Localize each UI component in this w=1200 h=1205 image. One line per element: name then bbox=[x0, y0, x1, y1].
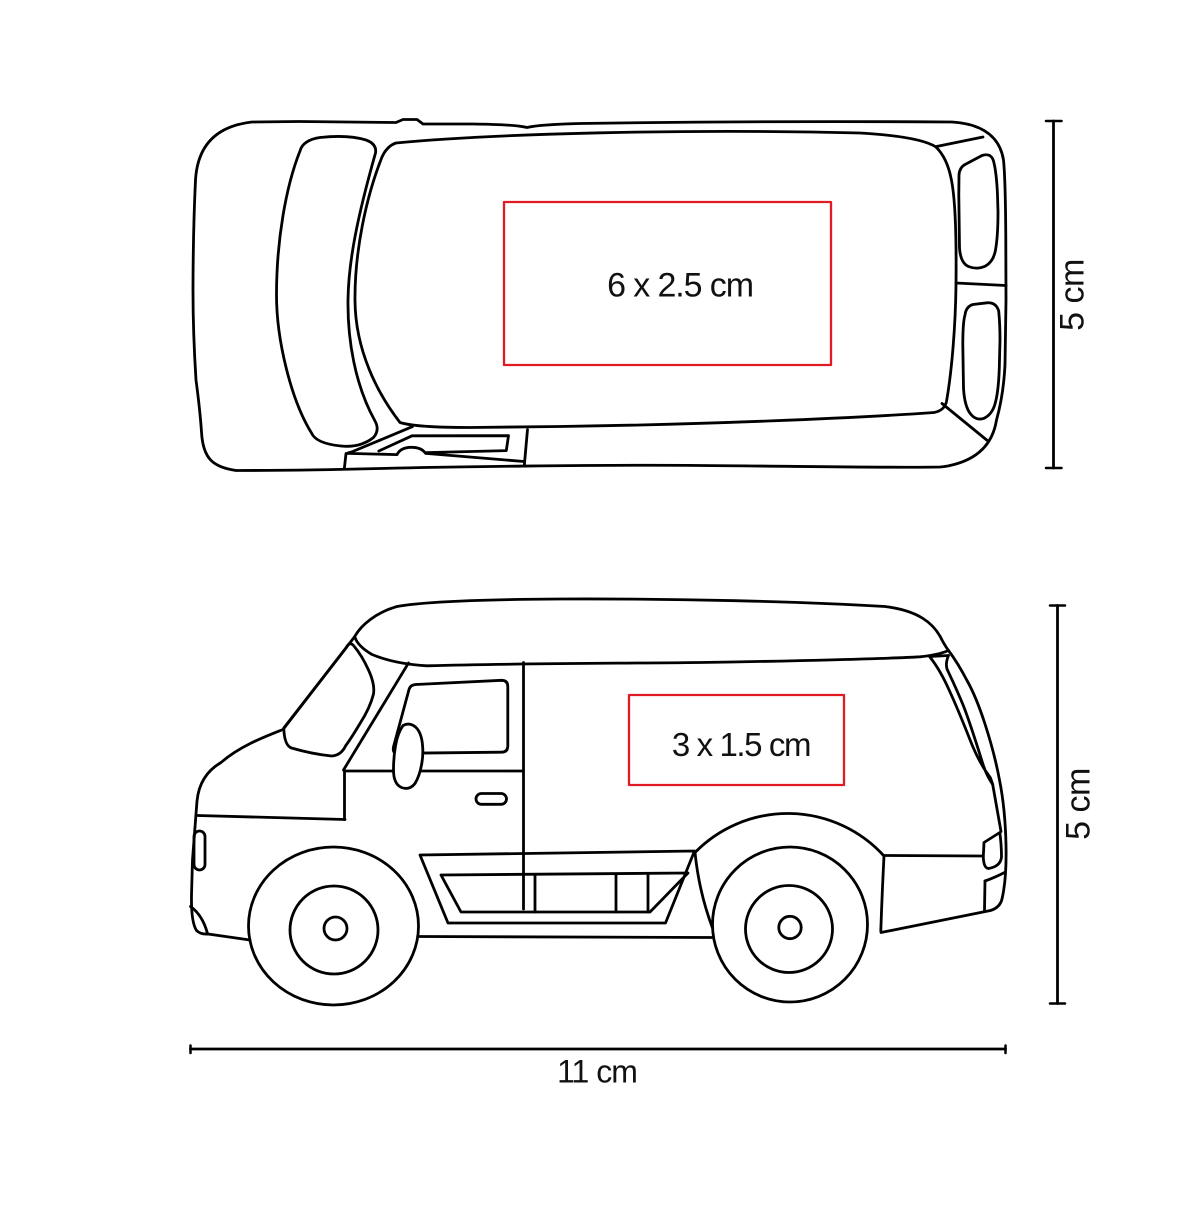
svg-text:11 cm: 11 cm bbox=[557, 1054, 637, 1090]
svg-text:6 x 2.5 cm: 6 x 2.5 cm bbox=[607, 267, 753, 305]
svg-text:5 cm: 5 cm bbox=[1060, 768, 1098, 840]
svg-text:3 x 1.5 cm: 3 x 1.5 cm bbox=[672, 726, 810, 763]
svg-text:5 cm: 5 cm bbox=[1054, 259, 1092, 331]
